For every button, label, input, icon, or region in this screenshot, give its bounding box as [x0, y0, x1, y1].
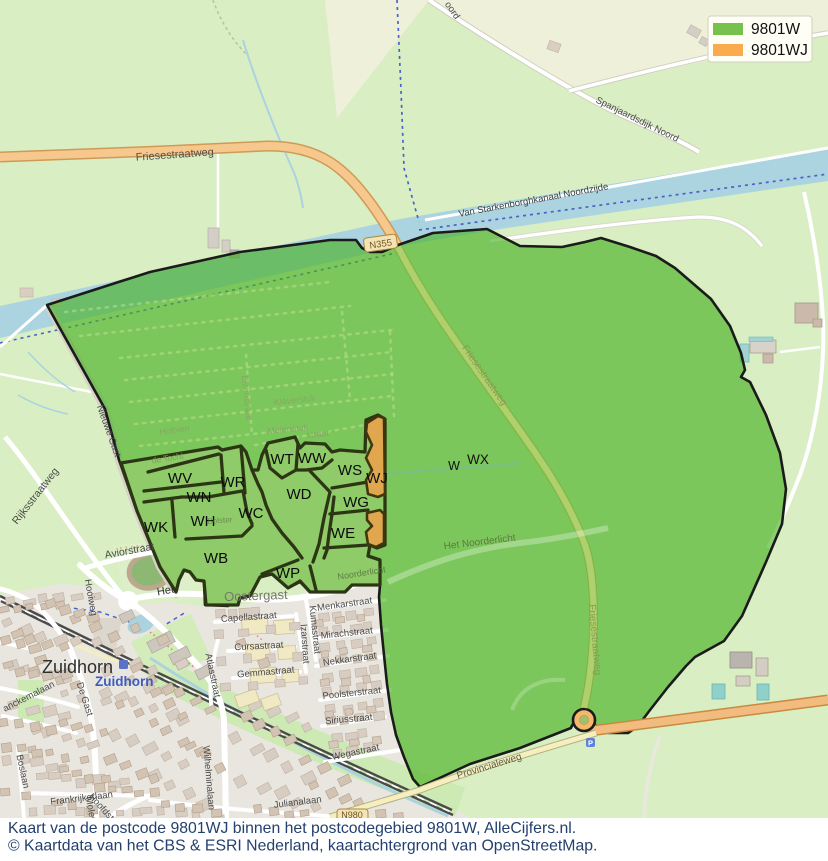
svg-text:WE: WE [331, 525, 355, 542]
svg-text:WW: WW [298, 450, 327, 467]
svg-text:WC: WC [239, 505, 264, 522]
svg-text:P: P [588, 739, 593, 748]
svg-text:WX: WX [467, 452, 489, 467]
svg-text:WD: WD [287, 486, 312, 503]
svg-text:© Kaartdata van het CBS & ESRI: © Kaartdata van het CBS & ESRI Nederland… [8, 838, 597, 855]
svg-text:WS: WS [338, 462, 362, 479]
svg-text:WR: WR [221, 474, 246, 491]
svg-text:WJ: WJ [366, 470, 388, 487]
svg-text:Bolster: Bolster [207, 515, 233, 526]
svg-text:WB: WB [204, 550, 228, 567]
svg-text:Zuidhorn: Zuidhorn [95, 674, 153, 689]
svg-text:9801WJ: 9801WJ [751, 42, 808, 59]
svg-text:WP: WP [276, 565, 300, 582]
svg-text:Kaart van de postcode 9801WJ b: Kaart van de postcode 9801WJ binnen het … [8, 820, 576, 837]
svg-text:Oostergast: Oostergast [224, 587, 288, 604]
svg-text:WK: WK [144, 519, 168, 536]
svg-text:WG: WG [343, 494, 369, 511]
svg-text:W: W [448, 459, 460, 473]
svg-text:WN: WN [187, 489, 212, 506]
svg-text:9801W: 9801W [751, 21, 800, 38]
svg-text:WT: WT [270, 451, 293, 468]
svg-text:WV: WV [168, 470, 192, 487]
